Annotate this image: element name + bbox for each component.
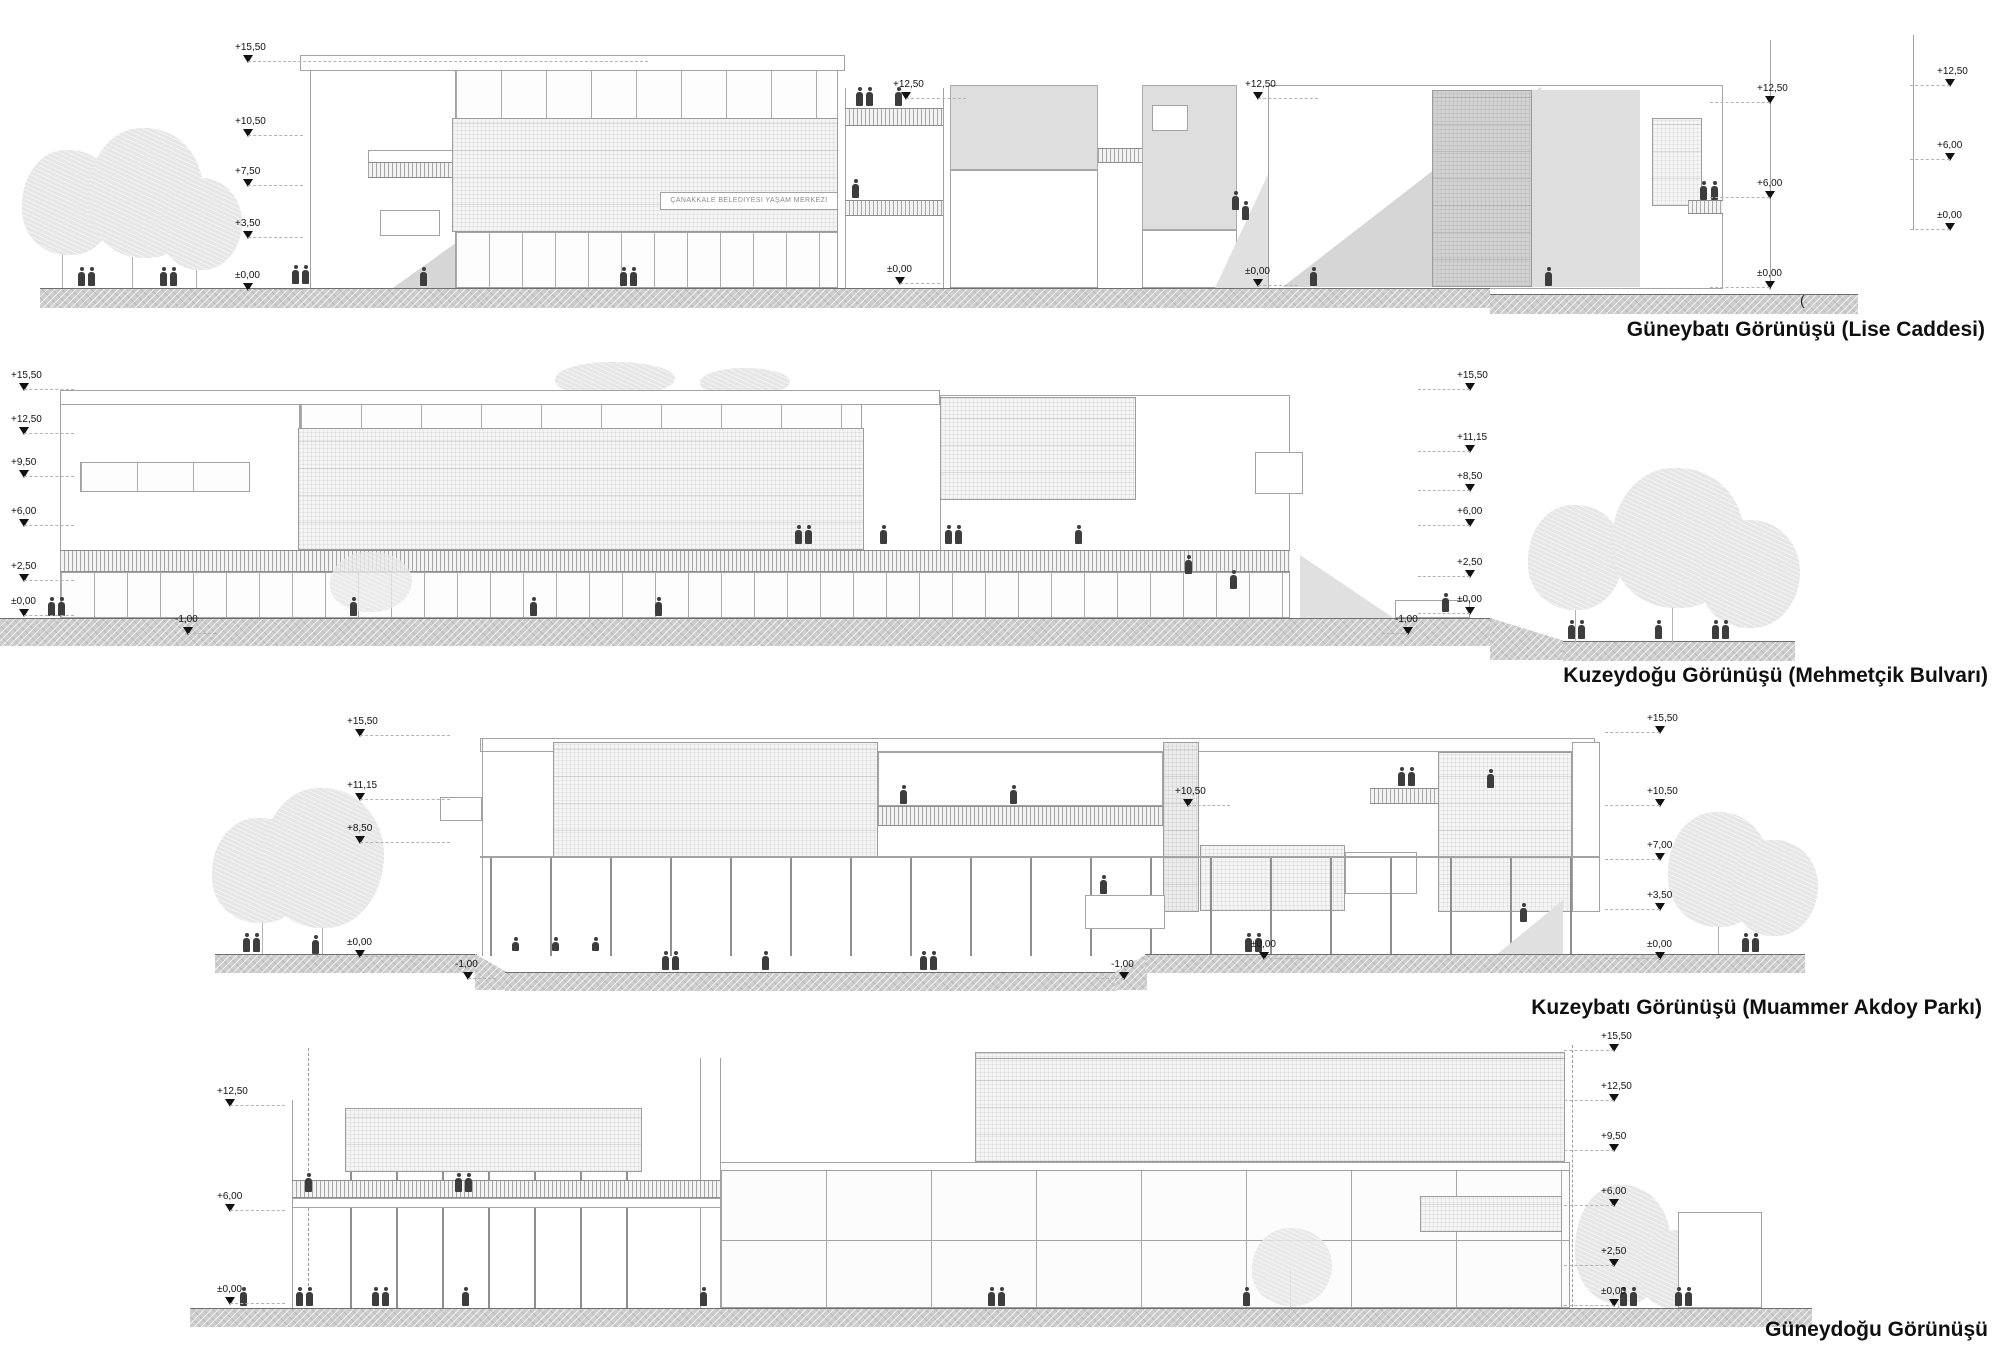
- mid-block-a: [950, 85, 1098, 170]
- person-figure: [302, 270, 309, 284]
- person-figure: [856, 92, 863, 106]
- person-figure: [920, 956, 927, 970]
- elevation-sheet: ÇANAKKALE BELEDİYESİ YAŞAM MERKEZİ: [0, 0, 2000, 1362]
- person-figure: [382, 1292, 389, 1306]
- walkway-railing: [292, 1180, 722, 1198]
- person-figure: [48, 602, 55, 616]
- mid-block-a-base: [950, 170, 1098, 288]
- bridge-railing-mid: [845, 200, 943, 216]
- mid-walkway-railing: [878, 806, 1163, 826]
- person-figure-seated: [512, 942, 519, 951]
- bridge-railing-upper: [845, 108, 943, 126]
- person-figure: [900, 790, 907, 804]
- ground-strip: [215, 954, 477, 973]
- transom-line: [720, 1240, 1570, 1241]
- person-figure-seated: [552, 942, 559, 951]
- portico-mesh-panel: [345, 1108, 642, 1172]
- person-figure: [1655, 625, 1662, 639]
- elevation-sw-drawing: ÇANAKKALE BELEDİYESİ YAŞAM MERKEZİ: [0, 0, 2000, 360]
- person-figure: [1675, 1292, 1682, 1306]
- person-figure: [88, 272, 95, 286]
- ground-strip: [190, 1308, 1812, 1327]
- elevation-caption-nw: Kuzeybatı Görünüşü (Muammer Akdoy Parkı): [1531, 996, 1982, 1020]
- person-figure: [312, 940, 319, 954]
- ground-step-down: [475, 954, 507, 990]
- building-sign-text: ÇANAKKALE BELEDİYESİ YAŞAM MERKEZİ: [662, 197, 836, 204]
- ground-strip: [40, 288, 1490, 308]
- person-figure: [420, 272, 427, 286]
- person-figure: [880, 530, 887, 544]
- datum-line: [1770, 40, 1771, 290]
- clerestory-glazing: [455, 70, 838, 120]
- inset-mesh-box: [1420, 1196, 1562, 1232]
- main-glazing-grid: [720, 1170, 1570, 1308]
- tree-icon: [1700, 520, 1800, 628]
- person-figure: [988, 1292, 995, 1306]
- person-figure: [1568, 625, 1575, 639]
- person-figure: [672, 956, 679, 970]
- person-figure: [955, 530, 962, 544]
- person-figure: [1310, 272, 1317, 286]
- person-figure: [305, 1178, 312, 1192]
- jutting-box: [440, 797, 482, 821]
- person-figure: [58, 602, 65, 616]
- person-figure: [243, 938, 250, 952]
- tree-icon: [262, 788, 384, 928]
- person-figure: [1232, 196, 1239, 210]
- person-figure: [655, 602, 662, 616]
- facade-mesh-band: [1432, 90, 1532, 287]
- gap-walkway-railing: [1098, 148, 1142, 163]
- person-figure: [1722, 625, 1729, 639]
- person-figure: [1185, 560, 1192, 574]
- person-figure: [620, 272, 627, 286]
- person-figure: [1075, 530, 1082, 544]
- person-figure: [1712, 625, 1719, 639]
- groundfloor-glazing: [60, 572, 1290, 618]
- person-figure: [372, 1292, 379, 1306]
- person-figure: [350, 602, 357, 616]
- ground-strip: [0, 618, 1492, 646]
- person-figure: [1700, 186, 1707, 200]
- person-figure: [1545, 272, 1552, 286]
- person-figure: [455, 1178, 462, 1192]
- facade-mesh-panel: [553, 742, 878, 858]
- colonnade-columns: [490, 858, 1600, 956]
- mezzanine-box: [1085, 895, 1165, 929]
- person-figure: [306, 1292, 313, 1306]
- person-figure: [170, 272, 177, 286]
- bridge-post: [943, 88, 944, 288]
- person-figure: [762, 956, 769, 970]
- person-figure: [630, 272, 637, 286]
- tree-icon: [1528, 505, 1624, 610]
- datum-line: [1913, 35, 1914, 230]
- person-figure: [945, 530, 952, 544]
- atrium-tree-icon: [1252, 1228, 1332, 1306]
- elevation-caption-ne: Kuzeydoğu Görünüşü (Mehmetçik Bulvarı): [1563, 664, 1988, 688]
- tree-icon: [1732, 840, 1818, 936]
- person-figure: [1487, 774, 1494, 788]
- person-figure: [292, 270, 299, 284]
- balcony-railing: [368, 162, 456, 178]
- person-figure: [465, 1178, 472, 1192]
- person-figure: [930, 956, 937, 970]
- tree-icon: [330, 552, 412, 612]
- person-figure: [805, 530, 812, 544]
- person-figure: [296, 1292, 303, 1306]
- person-figure: [795, 530, 802, 544]
- mid-band: [878, 752, 1163, 806]
- person-figure: [78, 272, 85, 286]
- person-figure: [866, 92, 873, 106]
- groundfloor-glazing: [455, 232, 838, 288]
- person-figure-seated: [592, 942, 599, 951]
- person-figure: [1100, 880, 1107, 894]
- person-figure: [998, 1292, 1005, 1306]
- person-figure: [1578, 625, 1585, 639]
- left-wing: [310, 70, 456, 290]
- person-figure: [1685, 1292, 1692, 1306]
- shaded-face: [1532, 90, 1640, 287]
- small-mesh-panel: [1652, 118, 1702, 206]
- person-figure: [160, 272, 167, 286]
- left-window-row: [80, 462, 250, 492]
- person-figure: [1230, 575, 1237, 589]
- mid-block-b-window: [1152, 105, 1188, 131]
- person-figure: [1242, 206, 1249, 220]
- walkway-deck: [292, 1198, 722, 1208]
- upper-mesh-volume: [975, 1052, 1565, 1162]
- person-figure: [1442, 598, 1449, 612]
- right-balcony-railing: [1688, 200, 1723, 214]
- dashed-datum-line: [1572, 1045, 1573, 1317]
- ground-strip-lower: [1563, 641, 1795, 661]
- sunken-court-floor: [505, 972, 1117, 991]
- person-figure: [662, 956, 669, 970]
- person-figure: [1742, 938, 1749, 952]
- person-figure: [253, 938, 260, 952]
- walkway-balustrade: [60, 550, 1290, 572]
- ground-strip-right: [1145, 954, 1805, 973]
- tree-icon: [160, 178, 242, 270]
- person-figure: [1010, 790, 1017, 804]
- roof-slab: [300, 55, 845, 71]
- right-small-window: [1255, 452, 1303, 494]
- person-figure: [530, 602, 537, 616]
- person-figure: [1630, 1292, 1637, 1306]
- person-figure: [462, 1292, 469, 1306]
- person-figure: [1520, 908, 1527, 922]
- roof-slab: [60, 390, 940, 405]
- elevation-caption-se: Güneydoğu Görünüşü: [1765, 1318, 1988, 1342]
- person-figure: [1408, 772, 1415, 786]
- elevation-caption-sw: Güneybatı Görünüşü (Lise Caddesi): [1627, 318, 1985, 342]
- facade-mesh-panel: [298, 428, 864, 550]
- window-box: [380, 210, 440, 236]
- person-figure: [1752, 938, 1759, 952]
- clerestory-glazing: [300, 404, 862, 430]
- person-figure: [852, 184, 859, 198]
- person-figure: [1398, 772, 1405, 786]
- facade-mesh-panel: [452, 118, 838, 232]
- fascia-line: [975, 1058, 1565, 1059]
- person-figure: [700, 1292, 707, 1306]
- person-figure: [1243, 1292, 1250, 1306]
- right-mesh-panel: [940, 397, 1136, 500]
- left-frame: [482, 738, 483, 956]
- stray-paren-glyph: (: [1800, 292, 1805, 308]
